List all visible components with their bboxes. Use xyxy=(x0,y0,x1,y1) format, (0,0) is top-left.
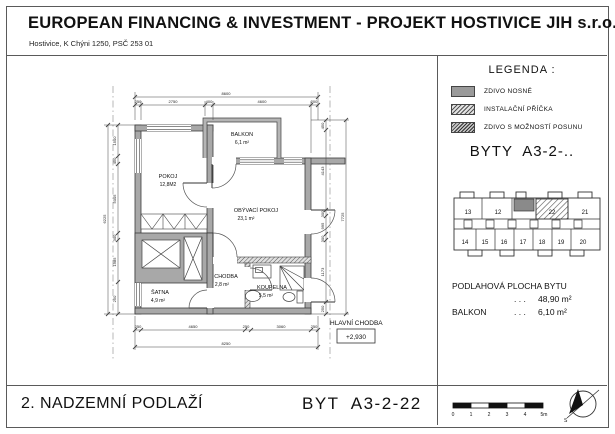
balcony-area-row: BALKON . . . 6,10 m² xyxy=(452,307,602,317)
dim-right-seg: 995 xyxy=(320,222,325,229)
wardrobe xyxy=(141,214,207,229)
title-block: EUROPEAN FINANCING & INVESTMENT - PROJEK… xyxy=(6,6,607,56)
drawing-sheet: EUROPEAN FINANCING & INVESTMENT - PROJEK… xyxy=(0,0,615,434)
bathroom-fixtures xyxy=(246,265,305,303)
unit-number: 14 xyxy=(462,240,469,246)
scale-tick: 5m xyxy=(541,412,548,418)
dim-bottom-seg: 4650 xyxy=(189,324,199,329)
legend-item-label: ZDIVO NOSNÉ xyxy=(484,88,532,95)
dim-bottom-seg: 3060 xyxy=(277,324,287,329)
highlighted-unit-22 xyxy=(536,199,568,219)
scale-tick: 3 xyxy=(506,412,509,418)
room-label-pokoj: POKOJ xyxy=(159,174,178,180)
hatch-wall-swatch xyxy=(451,104,475,115)
flats-heading: BYTY A3-2-.. xyxy=(437,143,607,160)
scale-tick: 0 xyxy=(452,412,455,418)
scale-tick: 1 xyxy=(470,412,473,418)
north-arrow-icon: S xyxy=(560,387,606,425)
dim-top-seg: 250 xyxy=(135,99,142,104)
dim-bottom-seg: 250 xyxy=(135,324,142,329)
scale-tick: 2 xyxy=(488,412,491,418)
level-mark: +2,930 xyxy=(346,334,366,341)
legend: LEGENDA : ZDIVO NOSNÉ INSTALAČNÍ PŘÍČKA … xyxy=(437,60,607,140)
dim-top-seg: 2750 xyxy=(169,99,179,104)
dots: . . . xyxy=(514,294,538,304)
unit-number: 18 xyxy=(539,240,546,246)
legend-item-zdivo-nosne: ZDIVO NOSNÉ xyxy=(451,86,607,97)
scale-bar: 0 1 2 3 4 5m xyxy=(445,393,555,423)
dim-top-total: 8600 xyxy=(222,91,232,96)
dim-top-seg: 400 xyxy=(206,99,213,104)
dim-left-seg: 300 xyxy=(112,234,117,241)
floor-area-label: PODLAHOVÁ PLOCHA BYTU xyxy=(452,281,567,291)
unit-number: 21 xyxy=(582,210,589,216)
legend-item-label: INSTALAČNÍ PŘÍČKA xyxy=(484,106,553,113)
dim-right-seg: 300 xyxy=(320,210,325,217)
movable-wall-swatch xyxy=(451,122,475,133)
unit-number: 13 xyxy=(465,210,472,216)
solid-wall-swatch xyxy=(451,86,475,97)
unit-title: BYT A3-2-22 xyxy=(302,394,422,414)
unit-number: 17 xyxy=(520,240,527,246)
dim-left-seg: 1985 xyxy=(112,257,117,267)
dim-left-seg: 5005 xyxy=(112,194,117,204)
dim-right-seg: 300 xyxy=(320,235,325,242)
dim-right-seg: 450 xyxy=(320,122,325,129)
floor-plan: POKOJ 12,8M2 BALKON 6,1 m² OBÝVACÍ POKOJ… xyxy=(90,68,435,383)
unit-number: 20 xyxy=(580,240,587,246)
north-label: S xyxy=(564,418,568,424)
scale-tick: 4 xyxy=(524,412,527,418)
room-label-satna: ŠATNA xyxy=(151,289,169,296)
company-address: Hostivice, K Chýni 1250, PSČ 253 01 xyxy=(29,39,153,48)
room-label-chodba: CHODBA xyxy=(214,274,238,280)
dim-left-total: 6225 xyxy=(102,214,107,224)
room-area-chodba: 2,8 m² xyxy=(215,282,230,288)
room-label-balkon: BALKON xyxy=(231,132,253,138)
floor-title: 2. NADZEMNÍ PODLAŽÍ xyxy=(21,395,203,413)
unit-number: 12 xyxy=(495,210,502,216)
dim-right-seg: 4143 xyxy=(320,166,325,176)
building-key-plan: 13 12 22 21 14 15 16 17 18 19 20 xyxy=(452,186,602,274)
legend-item-zdivo-posun: ZDIVO S MOŽNOSTÍ POSUNU xyxy=(451,122,607,133)
spacer xyxy=(452,294,514,304)
floor-area-row: PODLAHOVÁ PLOCHA BYTU xyxy=(452,281,602,291)
company-title: EUROPEAN FINANCING & INVESTMENT - PROJEK… xyxy=(28,14,615,33)
room-label-koupelna: KOUPELNA xyxy=(257,285,287,291)
floor-area-value: 48,90 m² xyxy=(538,294,572,304)
balcony-area-label: BALKON xyxy=(452,307,514,317)
unit-number: 15 xyxy=(482,240,489,246)
unit-number: 22 xyxy=(549,210,556,216)
room-area-obyvaci: 23,1 m² xyxy=(238,216,255,222)
legend-heading: LEGENDA : xyxy=(437,64,607,76)
dim-left-seg: 450 xyxy=(112,157,117,164)
dim-right-total: 7725 xyxy=(340,212,345,222)
floor-area-value-row: . . . 48,90 m² xyxy=(452,294,602,304)
room-label-obyvaci: OBÝVACÍ POKOJ xyxy=(234,207,278,214)
dim-top-seg: 4600 xyxy=(258,99,268,104)
unit-number: 16 xyxy=(501,240,508,246)
dots: . . . xyxy=(514,307,538,317)
balcony-area-value: 6,10 m² xyxy=(538,307,567,317)
room-area-satna: 4,9 m² xyxy=(151,298,166,304)
corridor-label: HLAVNÍ CHODBA xyxy=(330,318,383,327)
unit-number: 19 xyxy=(558,240,565,246)
dim-top-seg: 200 xyxy=(311,99,318,104)
dim-right-seg: 1173 xyxy=(320,267,325,276)
room-area-balkon: 6,1 m² xyxy=(235,140,250,146)
dim-left-seg: 1500 xyxy=(112,136,117,146)
dim-bottom-total: 8250 xyxy=(222,341,232,346)
dim-bottom-seg: 250 xyxy=(243,324,250,329)
balcony-walls xyxy=(203,118,281,158)
area-summary: PODLAHOVÁ PLOCHA BYTU . . . 48,90 m² BAL… xyxy=(452,281,602,320)
room-area-koupelna: 5,5 m² xyxy=(259,293,274,299)
dim-bottom-seg: 250 xyxy=(311,324,318,329)
dim-left-seg: 250 xyxy=(112,295,117,302)
dim-right-seg: 250 xyxy=(320,305,325,312)
legend-item-instalacni-pricka: INSTALAČNÍ PŘÍČKA xyxy=(451,104,607,115)
room-area-pokoj: 12,8M2 xyxy=(160,182,177,188)
legend-item-label: ZDIVO S MOŽNOSTÍ POSUNU xyxy=(484,124,583,131)
